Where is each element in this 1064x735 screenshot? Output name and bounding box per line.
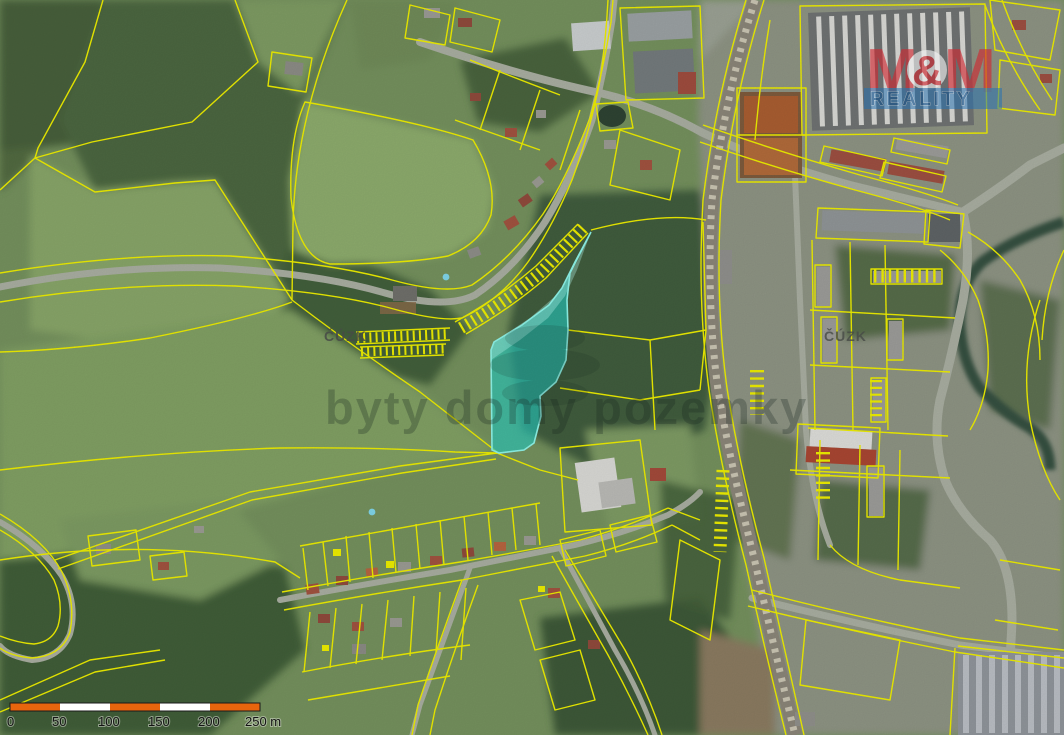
scale-tick-100: 100 [98, 714, 120, 729]
cadastral-map-screenshot: byty domy pozemky ČÚZK ČÚZK M M & REALIT… [0, 0, 1064, 735]
attribution-label-right: ČÚZK [824, 327, 867, 344]
scale-tick-150: 150 [148, 714, 170, 729]
scale-tick-0: 0 [7, 714, 14, 729]
logo-reality-label: REALITY [870, 89, 972, 110]
map-canvas: byty domy pozemky ČÚZK ČÚZK M M & REALIT… [0, 0, 1064, 735]
attribution-label-left: ČÚZK [324, 327, 367, 344]
scale-tick-250: 250 m [245, 714, 281, 729]
logo-ampersand: & [912, 47, 942, 94]
scale-tick-200: 200 [198, 714, 220, 729]
watermark-text: byty domy pozemky [325, 381, 808, 434]
scale-tick-50: 50 [52, 714, 66, 729]
mm-reality-logo: M M & REALITY [864, 37, 1002, 110]
